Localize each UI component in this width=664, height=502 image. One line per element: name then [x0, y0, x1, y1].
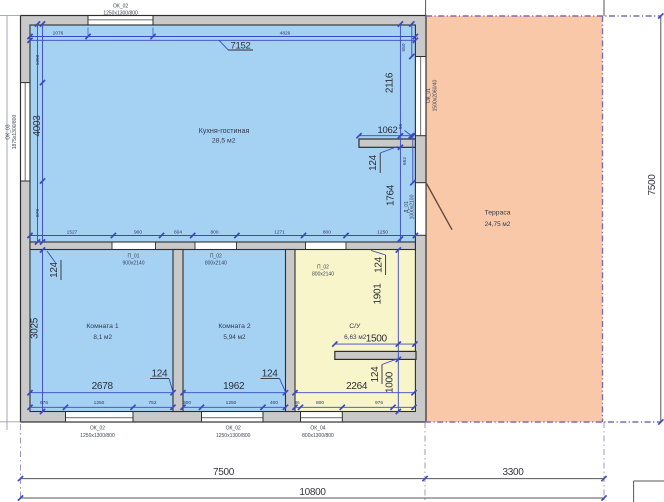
- svg-text:96: 96: [295, 400, 300, 405]
- svg-text:10800: 10800: [299, 487, 326, 498]
- svg-text:900х2140: 900х2140: [123, 261, 145, 267]
- svg-text:1062: 1062: [378, 125, 398, 136]
- svg-text:28,5 м2: 28,5 м2: [212, 138, 236, 145]
- svg-text:1076: 1076: [53, 31, 64, 37]
- svg-text:5,94 м2: 5,94 м2: [223, 334, 246, 341]
- svg-text:3025: 3025: [30, 317, 41, 339]
- svg-text:7152: 7152: [231, 41, 251, 52]
- svg-text:П_02: П_02: [317, 265, 329, 271]
- svg-text:800х1300/800: 800х1300/800: [302, 433, 334, 439]
- svg-text:1250: 1250: [94, 400, 105, 406]
- svg-text:976: 976: [375, 400, 383, 406]
- svg-text:900: 900: [134, 230, 142, 236]
- svg-text:800х2140: 800х2140: [205, 261, 227, 267]
- svg-text:24,75 м2: 24,75 м2: [485, 221, 511, 228]
- svg-text:2264: 2264: [346, 381, 368, 392]
- svg-text:1250: 1250: [377, 230, 388, 236]
- svg-text:800: 800: [316, 400, 324, 406]
- svg-text:878: 878: [35, 209, 41, 217]
- svg-text:124: 124: [368, 154, 379, 171]
- svg-text:800х2140: 800х2140: [312, 272, 334, 278]
- svg-text:1250: 1250: [35, 54, 41, 65]
- svg-text:300: 300: [183, 400, 191, 406]
- svg-text:Комната 2: Комната 2: [218, 323, 251, 330]
- svg-text:П_01: П_01: [128, 254, 140, 260]
- svg-text:2116: 2116: [385, 72, 396, 93]
- svg-text:С/У: С/У: [349, 323, 361, 330]
- svg-text:2678: 2678: [92, 381, 114, 392]
- svg-text:400: 400: [270, 400, 278, 406]
- svg-text:1250: 1250: [226, 400, 237, 406]
- svg-text:ОК_04: ОК_04: [310, 426, 325, 432]
- svg-text:ОК_01: ОК_01: [426, 88, 432, 103]
- svg-text:800: 800: [323, 230, 331, 236]
- svg-text:124: 124: [49, 261, 60, 278]
- svg-text:800: 800: [210, 230, 218, 236]
- svg-text:7500: 7500: [647, 174, 658, 196]
- svg-text:П_02: П_02: [210, 254, 222, 260]
- svg-text:1764: 1764: [385, 184, 396, 206]
- svg-text:ОК_02: ОК_02: [113, 4, 128, 10]
- svg-text:676: 676: [40, 400, 48, 406]
- svg-text:1000х2100: 1000х2100: [410, 194, 416, 219]
- svg-text:1250х1300/800: 1250х1300/800: [216, 433, 251, 439]
- svg-text:604: 604: [174, 230, 182, 236]
- svg-text:7500: 7500: [213, 467, 235, 478]
- svg-text:ОК_02: ОК_02: [226, 426, 241, 432]
- svg-text:1500х2060/40: 1500х2060/40: [432, 79, 438, 111]
- svg-text:3300: 3300: [502, 467, 524, 478]
- svg-text:ОК_03: ОК_03: [5, 124, 11, 139]
- svg-text:8,1 м2: 8,1 м2: [93, 334, 112, 341]
- svg-text:ОК_02: ОК_02: [90, 426, 105, 432]
- svg-text:96: 96: [398, 124, 404, 130]
- svg-text:652: 652: [402, 157, 408, 165]
- svg-text:1000: 1000: [385, 371, 396, 393]
- svg-text:1527: 1527: [67, 230, 78, 236]
- svg-text:124: 124: [374, 256, 385, 273]
- svg-text:Кухня-гостиная: Кухня-гостиная: [199, 126, 250, 135]
- svg-text:1875х1300/800: 1875х1300/800: [12, 115, 18, 150]
- svg-text:1250х1300/800: 1250х1300/800: [80, 433, 115, 439]
- svg-text:Комната 1: Комната 1: [86, 323, 119, 330]
- svg-text:1500: 1500: [366, 333, 388, 344]
- svg-text:124: 124: [370, 366, 381, 383]
- svg-text:6,63 м2: 6,63 м2: [344, 334, 367, 341]
- svg-text:4826: 4826: [280, 31, 291, 37]
- svg-text:1250х1300/800: 1250х1300/800: [103, 11, 138, 17]
- svg-text:752: 752: [148, 400, 156, 406]
- svg-text:1962: 1962: [223, 381, 245, 392]
- svg-text:550: 550: [401, 43, 407, 51]
- svg-text:1271: 1271: [274, 230, 285, 236]
- svg-text:1901: 1901: [372, 283, 383, 305]
- svg-text:4003: 4003: [32, 115, 43, 137]
- svg-text:Терраса: Терраса: [484, 210, 510, 217]
